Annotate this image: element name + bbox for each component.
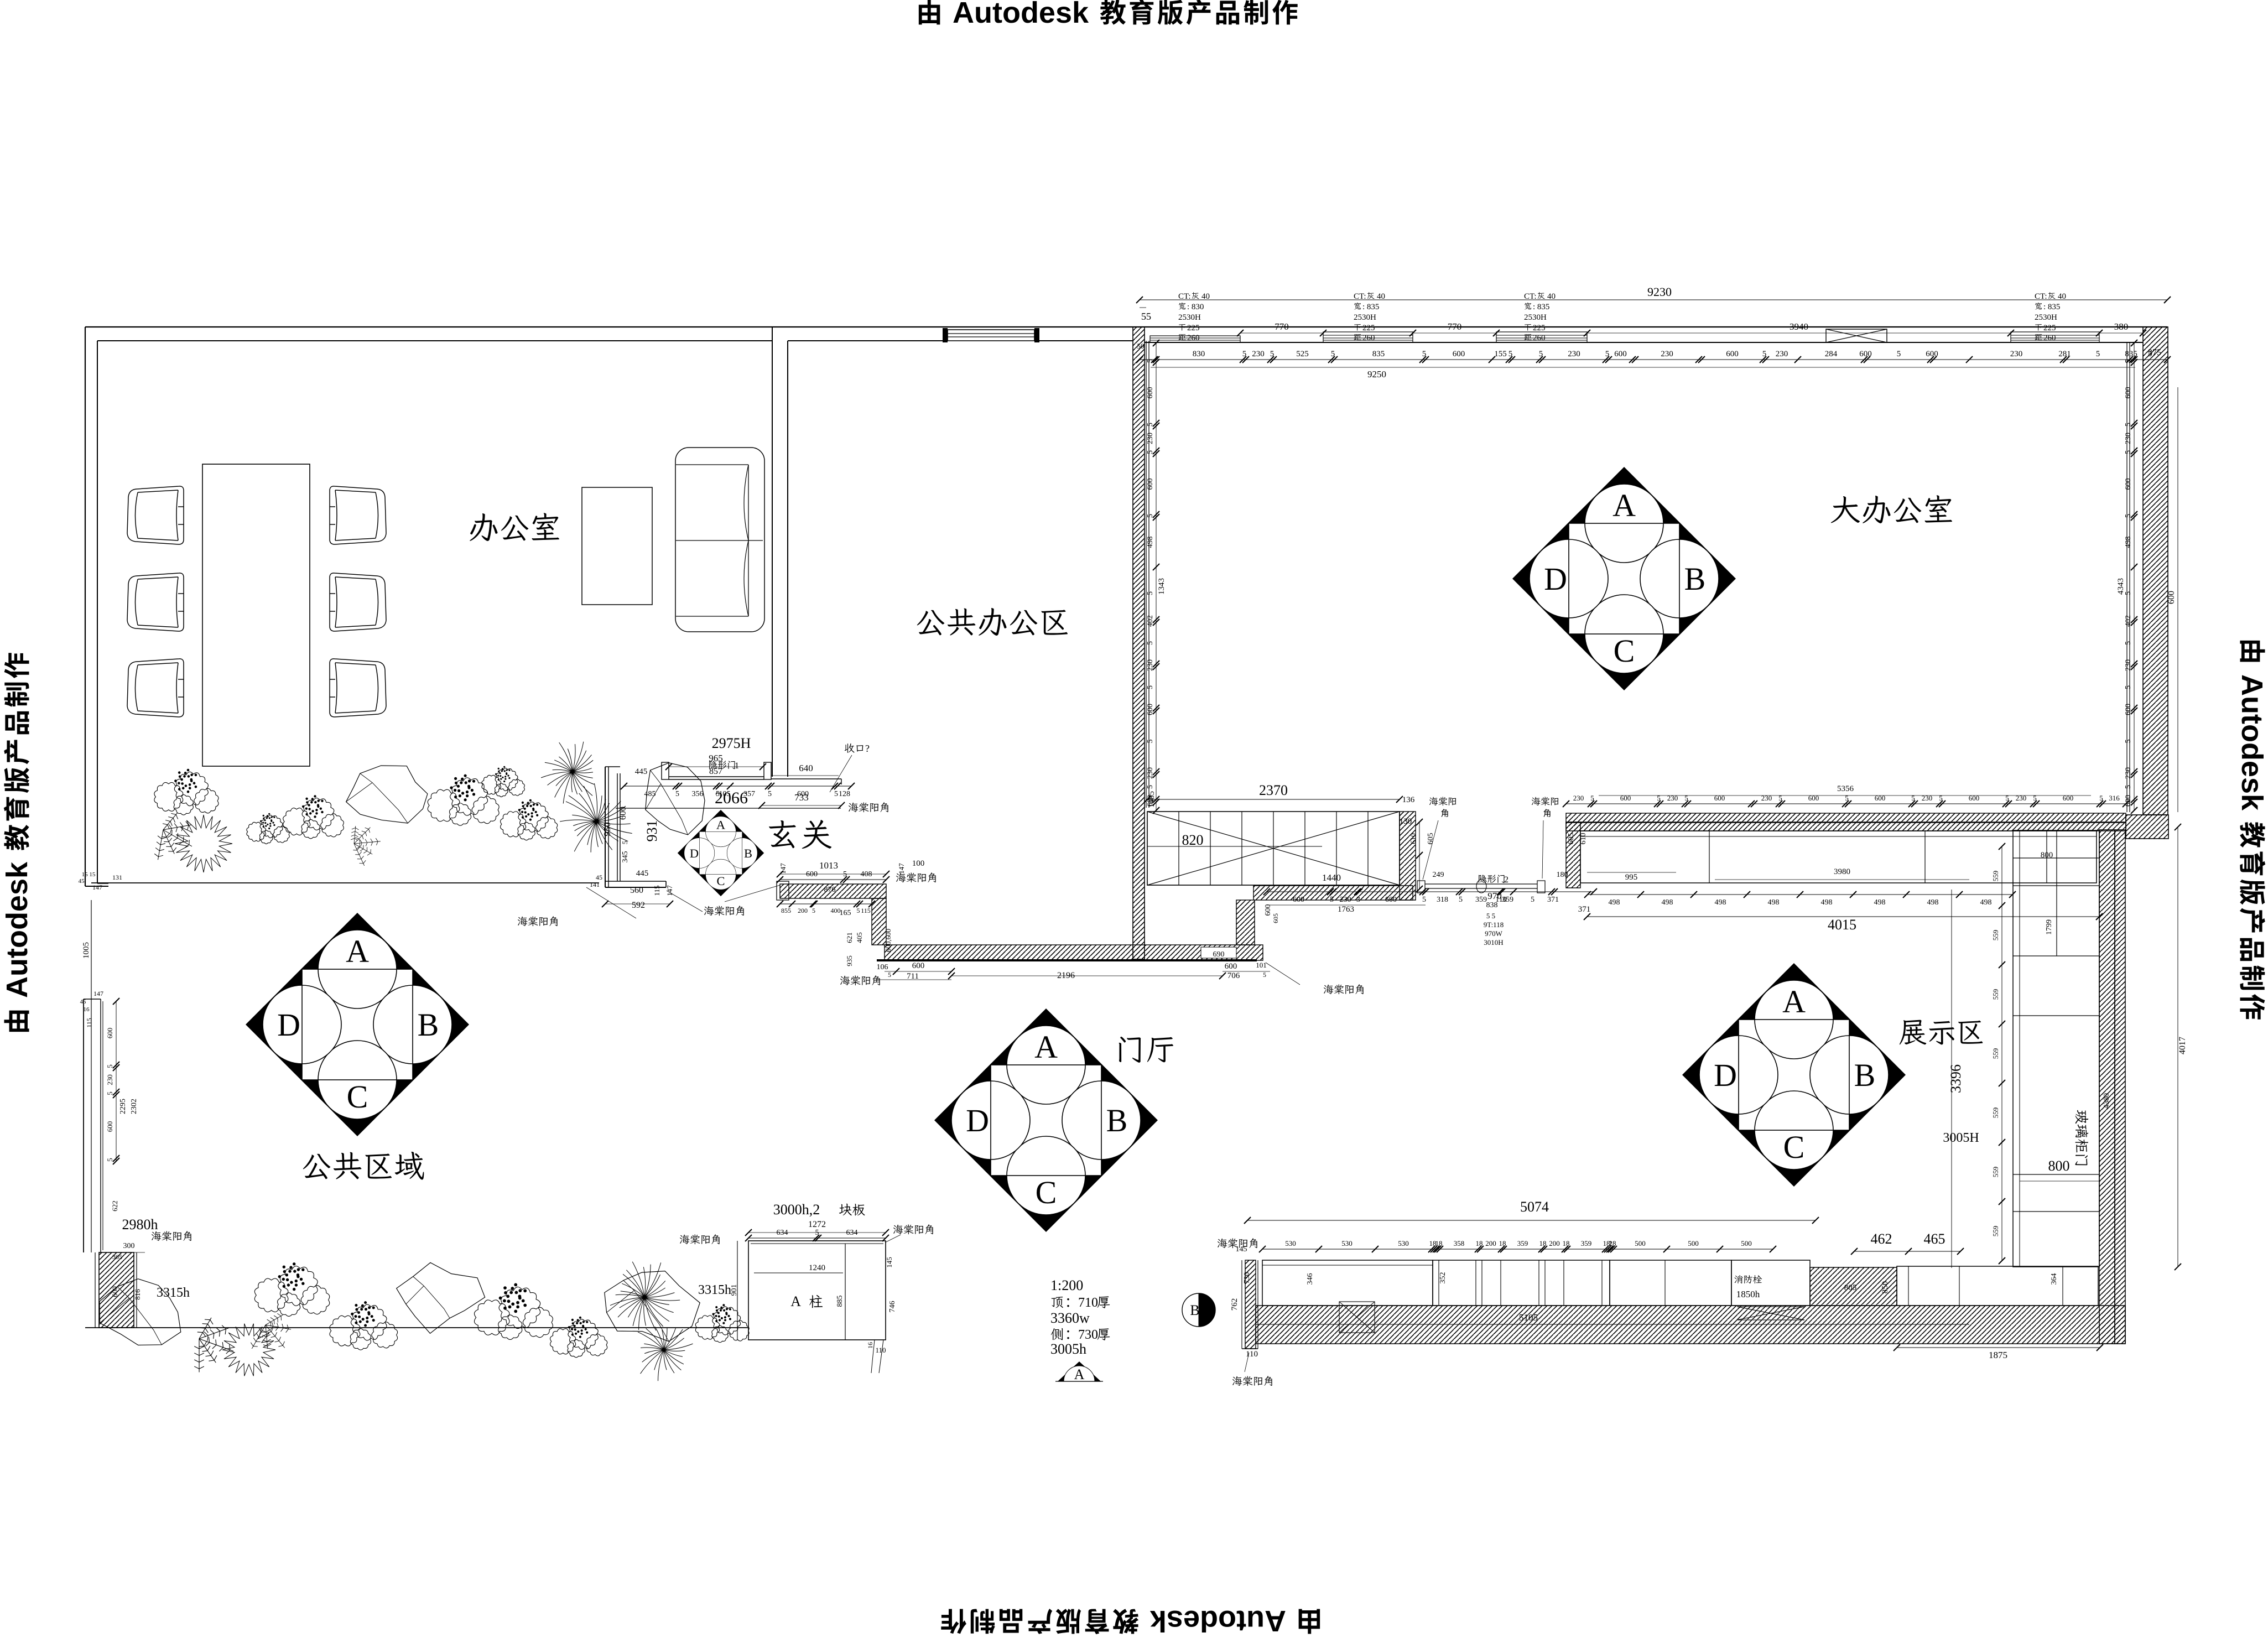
svg-text:559: 559 [1991,1226,2000,1237]
svg-text:145: 145 [1236,1245,1247,1254]
svg-text:559: 559 [1991,1108,2000,1119]
svg-text:2295: 2295 [119,1099,127,1114]
svg-text:600: 600 [2063,794,2074,802]
svg-text:600: 600 [1293,896,1304,904]
svg-text:592: 592 [632,901,645,910]
svg-text:525: 525 [1296,350,1309,358]
svg-text:230: 230 [2124,659,2132,671]
svg-text:600: 600 [1146,704,1154,715]
svg-text:359: 359 [1502,896,1513,904]
svg-text:165: 165 [840,909,851,917]
svg-text:155: 155 [1494,350,1507,358]
svg-text:5: 5 [1146,423,1154,427]
svg-text:101: 101 [1256,961,1267,969]
svg-text:600: 600 [1385,896,1397,904]
svg-text:5356: 5356 [1837,784,1854,793]
svg-text:Autodesk: Autodesk [2235,674,2268,811]
svg-text:5074: 5074 [1520,1199,1549,1215]
svg-text:5: 5 [1762,350,1767,358]
svg-text:5: 5 [1508,350,1513,358]
svg-text:605: 605 [1427,833,1435,845]
svg-text:600: 600 [806,870,818,878]
svg-text:5: 5 [2005,794,2009,802]
svg-text:356: 356 [692,790,704,798]
svg-text:600: 600 [1859,350,1872,358]
svg-text:405: 405 [855,932,863,943]
svg-text:230: 230 [1146,433,1154,444]
svg-text:485: 485 [644,790,656,798]
svg-text:5: 5 [888,971,891,979]
svg-text:Autodesk: Autodesk [1,861,34,998]
svg-text:200: 200 [1549,1239,1560,1247]
svg-text:1763: 1763 [1338,905,1354,914]
svg-text:498: 498 [1715,898,1726,907]
svg-text:：710: ：710 [1065,1296,1098,1310]
svg-text:2066: 2066 [715,789,748,807]
svg-text:5: 5 [1539,350,1543,358]
svg-text:2302: 2302 [130,1099,138,1114]
svg-text:600: 600 [2124,704,2132,715]
svg-text:733: 733 [794,792,809,803]
svg-text:: 835: : 835 [1533,303,1549,311]
svg-text:3315h: 3315h [698,1283,731,1297]
svg-text:18: 18 [1539,1239,1547,1247]
svg-text:498: 498 [1927,898,1939,907]
svg-text:498: 498 [1146,537,1154,548]
svg-text:600: 600 [1146,479,1154,490]
svg-text:1005: 1005 [82,942,91,959]
svg-text:: 830: : 830 [1187,303,1204,311]
svg-text:5: 5 [768,790,772,798]
svg-text:1:200: 1:200 [1050,1277,1083,1293]
svg-text:634: 634 [777,1229,788,1237]
svg-text:2975H: 2975H [712,735,751,751]
svg-text:230: 230 [1761,794,1772,802]
svg-text:5: 5 [1146,685,1154,689]
svg-text:359: 359 [1475,896,1487,904]
svg-text:1799: 1799 [2045,919,2053,935]
svg-text:5: 5 [1422,896,1426,904]
svg-text:230: 230 [1573,794,1584,802]
svg-text:5: 5 [1330,896,1334,904]
svg-text:345: 345 [621,851,630,863]
svg-text:498: 498 [1874,898,1886,907]
svg-text:498: 498 [1980,898,1992,907]
svg-text:838: 838 [1486,901,1498,909]
svg-text:5: 5 [1657,794,1661,802]
svg-text:835: 835 [2125,350,2137,358]
svg-text:800: 800 [2041,851,2053,860]
svg-text:281: 281 [2058,350,2071,358]
svg-text:931: 931 [644,820,660,842]
svg-text:Autodesk: Autodesk [1149,1604,1286,1637]
svg-text:?: ? [865,743,870,754]
svg-text:850: 850 [1881,1281,1890,1294]
svg-text:5: 5 [815,1229,819,1237]
svg-text:5: 5 [2124,514,2132,518]
svg-text:55: 55 [1141,311,1151,322]
svg-text:805: 805 [1844,1283,1857,1292]
svg-text:816: 816 [133,1289,142,1300]
svg-text:600: 600 [1714,794,1725,802]
svg-text:600,600: 600,600 [884,929,892,952]
svg-text:970W: 970W [1485,929,1503,938]
svg-text:147: 147 [93,990,103,997]
svg-text:316: 316 [2109,794,2120,802]
svg-text:1875: 1875 [1989,1350,2007,1360]
svg-text:559: 559 [1991,1167,2000,1178]
svg-text:200: 200 [1485,1239,1496,1247]
svg-text:115: 115 [85,1018,93,1028]
svg-text:559: 559 [1991,871,2000,882]
svg-text:230: 230 [1146,659,1154,671]
svg-text:5: 5 [857,907,860,914]
svg-text:498: 498 [1609,898,1620,907]
svg-text:230: 230 [1252,350,1265,358]
svg-text:147: 147 [92,883,102,891]
svg-text:2: 2 [1504,875,1508,885]
svg-text:730: 730 [1243,1272,1251,1284]
svg-text:128: 128 [839,790,850,798]
svg-text:530: 530 [1341,1239,1353,1247]
svg-text:18: 18 [1563,1239,1570,1247]
svg-text:5: 5 [2033,794,2037,802]
svg-text:559: 559 [1991,989,2000,1000]
svg-text:762: 762 [1230,1298,1239,1311]
svg-text:364: 364 [2050,1273,2058,1285]
svg-text:230: 230 [106,1074,114,1085]
svg-text:600: 600 [1146,387,1154,399]
svg-text:260: 260 [1187,334,1200,342]
svg-text:5: 5 [1146,785,1154,789]
svg-text:9250: 9250 [1367,369,1386,379]
svg-text:445: 445 [635,767,648,776]
svg-text:500: 500 [1741,1239,1752,1247]
svg-text:18: 18 [1435,1239,1443,1247]
svg-text:5: 5 [1845,794,1849,802]
svg-text:5: 5 [2099,794,2103,802]
svg-text:115: 115 [653,885,661,896]
svg-text:110: 110 [1246,1350,1258,1359]
svg-text:5: 5 [675,790,679,798]
svg-text:559: 559 [1991,930,2000,941]
svg-text:1440: 1440 [1322,872,1341,883]
svg-text:371: 371 [1578,905,1591,914]
svg-text:3010H: 3010H [1484,938,1503,947]
svg-text:16: 16 [866,1342,874,1349]
svg-text:5: 5 [1146,641,1154,645]
svg-text:5: 5 [1684,794,1688,802]
svg-text:5: 5 [1242,350,1247,358]
svg-text:600: 600 [1453,350,1465,358]
svg-text:530: 530 [1398,1239,1409,1247]
svg-text:230: 230 [1146,767,1154,779]
svg-text:5: 5 [812,907,815,914]
svg-text:131: 131 [112,874,122,881]
svg-text:610: 610 [1409,833,1417,844]
svg-text:5: 5 [2124,641,2132,645]
svg-text:371: 371 [1547,896,1559,904]
svg-text:300: 300 [123,1242,135,1250]
svg-text:935: 935 [845,955,854,966]
svg-text:622: 622 [111,1200,119,1212]
svg-text:1850h: 1850h [1736,1289,1760,1299]
svg-text:605: 605 [1272,913,1279,923]
svg-text:2530H: 2530H [1178,313,1201,322]
svg-text:200: 200 [798,907,808,914]
svg-text:: 835: : 835 [2043,303,2060,311]
svg-text:965: 965 [709,753,723,763]
svg-text:380: 380 [2114,321,2129,332]
svg-text:3: 3 [1356,896,1360,904]
svg-text:284: 284 [1825,350,1838,358]
svg-text:5: 5 [1897,350,1901,358]
svg-text:5: 5 [106,1064,114,1068]
svg-text:B: B [1190,1302,1199,1318]
svg-text:1240: 1240 [809,1264,825,1272]
svg-text:A: A [1074,1366,1085,1382]
svg-text:147: 147 [897,863,906,874]
svg-text:359: 359 [1581,1239,1592,1247]
svg-text:559: 559 [1991,1048,2000,1059]
svg-text:225: 225 [1187,324,1200,332]
svg-text:3005H: 3005H [1943,1131,1979,1145]
svg-text:500: 500 [1635,1239,1646,1247]
svg-text:346: 346 [1306,1273,1314,1285]
svg-text:15 15: 15 15 [82,871,96,878]
svg-text:600: 600 [1620,794,1631,802]
svg-text:857: 857 [709,767,722,776]
svg-text:498: 498 [1662,898,1673,907]
svg-text:600: 600 [106,1028,114,1039]
svg-text:141: 141 [590,881,600,888]
svg-text:2530H: 2530H [1354,313,1376,322]
svg-text:498: 498 [1821,898,1833,907]
svg-text:3360w: 3360w [1050,1310,1090,1326]
svg-text:230: 230 [1922,794,1933,802]
svg-text:5: 5 [1263,971,1266,979]
svg-text:3000h,2: 3000h,2 [773,1202,820,1218]
svg-text:230: 230 [2016,794,2027,802]
svg-text:5: 5 [2124,740,2132,743]
svg-text:147: 147 [665,885,674,896]
svg-text:901: 901 [730,1285,738,1296]
svg-text:600: 600 [111,1286,119,1297]
svg-text:260: 260 [1362,334,1375,342]
svg-text:5: 5 [2124,785,2132,789]
svg-text:5: 5 [1459,896,1463,904]
svg-text:462: 462 [1871,1231,1892,1247]
svg-text:9230: 9230 [1647,285,1672,299]
svg-text:136: 136 [1402,795,1415,804]
svg-text:：730: ：730 [1065,1328,1098,1342]
svg-text:45: 45 [79,878,85,885]
svg-text:3980: 3980 [1834,867,1850,876]
svg-text:3940: 3940 [1790,321,1808,332]
svg-text:995: 995 [1625,873,1638,882]
svg-text:5: 5 [1146,359,1154,363]
svg-text:605: 605 [1567,833,1575,845]
svg-text:835: 835 [1372,350,1385,358]
svg-text:225: 225 [2043,324,2056,332]
svg-text:225: 225 [1533,324,1546,332]
svg-text:352: 352 [1439,1272,1447,1284]
svg-text:876: 876 [824,886,836,894]
svg-text:50: 50 [1137,342,1145,350]
svg-text:100: 100 [912,859,925,868]
svg-text:4015: 4015 [1828,917,1856,933]
svg-text:230: 230 [1340,896,1351,904]
svg-text:230: 230 [1776,350,1788,358]
svg-text:16: 16 [84,1006,90,1013]
svg-text:375: 375 [2148,348,2161,357]
svg-text:Autodesk: Autodesk [953,0,1089,29]
svg-text:621: 621 [845,932,854,943]
svg-text:5: 5 [2124,591,2132,595]
svg-text:45: 45 [80,999,87,1005]
svg-text:249: 249 [1433,871,1444,879]
svg-text:600: 600 [2124,387,2132,399]
svg-text:5: 5 [106,1158,114,1162]
svg-text:5: 5 [1939,794,1943,802]
svg-text:: 835: : 835 [1362,303,1379,311]
svg-text:445: 445 [636,869,649,878]
svg-text:402: 402 [2124,615,2132,627]
svg-text:5: 5 [1778,794,1782,802]
svg-text:4017: 4017 [2178,1037,2187,1054]
svg-text:5: 5 [2124,359,2132,363]
svg-text:110: 110 [875,1346,886,1354]
svg-text:225: 225 [1362,324,1375,332]
svg-text:1: 1 [735,761,739,771]
svg-text:820: 820 [1182,832,1204,848]
svg-text:711: 711 [907,972,919,981]
svg-text:498: 498 [1768,898,1780,907]
svg-text:610: 610 [1579,833,1588,845]
svg-text:130: 130 [1400,817,1412,826]
svg-text:830: 830 [1193,350,1205,358]
svg-text:5: 5 [1605,350,1610,358]
svg-text:5: 5 [1270,350,1275,358]
svg-text:260: 260 [1533,334,1546,342]
svg-text:5: 5 [1422,350,1427,358]
svg-text:408: 408 [861,870,872,878]
svg-text:498: 498 [2124,537,2132,548]
svg-text:305: 305 [112,1253,122,1261]
svg-text:600: 600 [1808,794,1819,802]
svg-text:5: 5 [2096,350,2100,358]
svg-text:530: 530 [1285,1239,1296,1247]
svg-text:45: 45 [596,874,602,881]
svg-text:1272: 1272 [808,1220,826,1229]
svg-text:5: 5 [843,870,847,878]
svg-text:5: 5 [2124,423,2132,427]
svg-text:359: 359 [1517,1239,1528,1247]
svg-text:角: 角 [1543,809,1551,818]
svg-text:角: 角 [1440,809,1449,818]
svg-text:3005h: 3005h [1050,1341,1086,1357]
svg-text:600: 600 [912,961,925,970]
svg-text:706: 706 [1227,971,1240,980]
svg-text:600: 600 [1614,350,1627,358]
svg-text:5: 5 [1911,794,1915,802]
svg-text:5: 5 [1146,450,1154,454]
svg-text:145: 145 [885,1257,893,1268]
svg-text:600: 600 [2167,591,2176,604]
svg-text:600: 600 [2124,479,2132,490]
svg-text:147: 147 [779,863,787,874]
svg-text:230: 230 [2124,767,2132,779]
svg-text:4380: 4380 [2103,1093,2111,1109]
svg-text:2196: 2196 [1057,971,1075,980]
svg-text:5: 5 [1146,740,1154,743]
svg-text:180: 180 [1557,871,1568,879]
svg-text:5: 5 [1146,591,1154,595]
svg-text:770: 770 [1448,321,1462,332]
svg-text:5: 5 [1531,896,1534,904]
svg-text:2530H: 2530H [2035,313,2057,322]
svg-text:230: 230 [2010,350,2023,358]
svg-text:18: 18 [1609,1239,1616,1247]
svg-text:1343: 1343 [1157,578,1166,595]
svg-text:358: 358 [1454,1239,1465,1247]
svg-text:800: 800 [2048,1158,2070,1174]
svg-text:4343: 4343 [2116,578,2125,595]
svg-text:5 5: 5 5 [1486,912,1495,920]
svg-text:560: 560 [630,886,643,895]
svg-text:5: 5 [834,790,838,798]
svg-text:318: 318 [1437,896,1448,904]
svg-text:746: 746 [888,1301,897,1313]
svg-text:230: 230 [1667,794,1678,802]
svg-text:230: 230 [2124,433,2132,444]
svg-text:600: 600 [1875,794,1886,802]
svg-text:2980h: 2980h [122,1216,158,1233]
svg-text:2370: 2370 [1259,782,1288,798]
svg-text:600: 600 [1225,962,1237,971]
svg-text:9T:118: 9T:118 [1484,921,1504,929]
svg-text:600: 600 [1264,904,1272,916]
svg-text:600: 600 [1726,350,1739,358]
svg-text:18: 18 [1499,1239,1506,1247]
svg-text:18: 18 [1476,1239,1483,1247]
svg-text:600: 600 [106,1121,114,1132]
svg-text:A: A [790,1293,801,1309]
svg-text:600: 600 [1926,350,1938,358]
svg-text:634: 634 [846,1229,858,1237]
svg-text:5: 5 [1146,514,1154,518]
svg-text:5: 5 [2124,450,2132,454]
svg-text:770: 770 [1275,321,1289,332]
svg-text:402: 402 [1146,615,1154,627]
svg-text:5: 5 [2124,685,2132,689]
svg-text:3315h: 3315h [157,1286,190,1300]
svg-text:115: 115 [861,907,871,914]
svg-text:5105: 5105 [1519,1312,1538,1323]
svg-text:690: 690 [1213,950,1225,959]
svg-text:885: 885 [836,1296,844,1307]
svg-text:106: 106 [877,963,888,971]
svg-text:5: 5 [106,1091,114,1095]
svg-text:600: 600 [1969,794,1980,802]
svg-text:5: 5 [1331,350,1335,358]
svg-text:3396: 3396 [1948,1064,1964,1093]
svg-text:2530H: 2530H [1524,313,1547,322]
svg-text:230: 230 [1661,350,1673,358]
svg-text:465: 465 [1924,1231,1946,1247]
svg-text:640: 640 [799,763,813,773]
svg-text:600: 600 [618,807,628,820]
